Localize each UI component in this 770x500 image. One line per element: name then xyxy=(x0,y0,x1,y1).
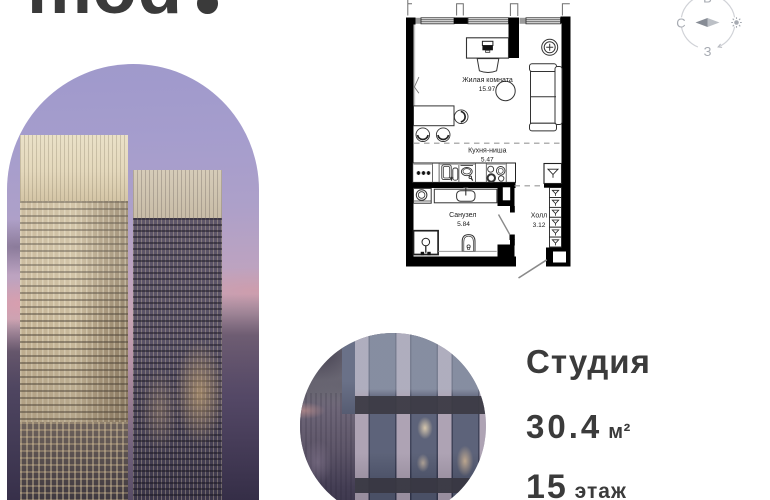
svg-text:З: З xyxy=(704,44,712,59)
svg-text:С: С xyxy=(676,16,685,31)
svg-text:15.97: 15.97 xyxy=(479,86,496,93)
svg-text:5.47: 5.47 xyxy=(481,156,494,163)
svg-text:Кухня-ниша: Кухня-ниша xyxy=(468,148,506,155)
svg-text:Холл: Холл xyxy=(531,213,548,220)
svg-text:3.12: 3.12 xyxy=(533,222,546,229)
svg-text:Жилая комната: Жилая комната xyxy=(462,77,513,84)
svg-text:5.84: 5.84 xyxy=(457,221,470,228)
svg-text:Санузел: Санузел xyxy=(449,212,476,219)
svg-text:В: В xyxy=(703,0,712,6)
